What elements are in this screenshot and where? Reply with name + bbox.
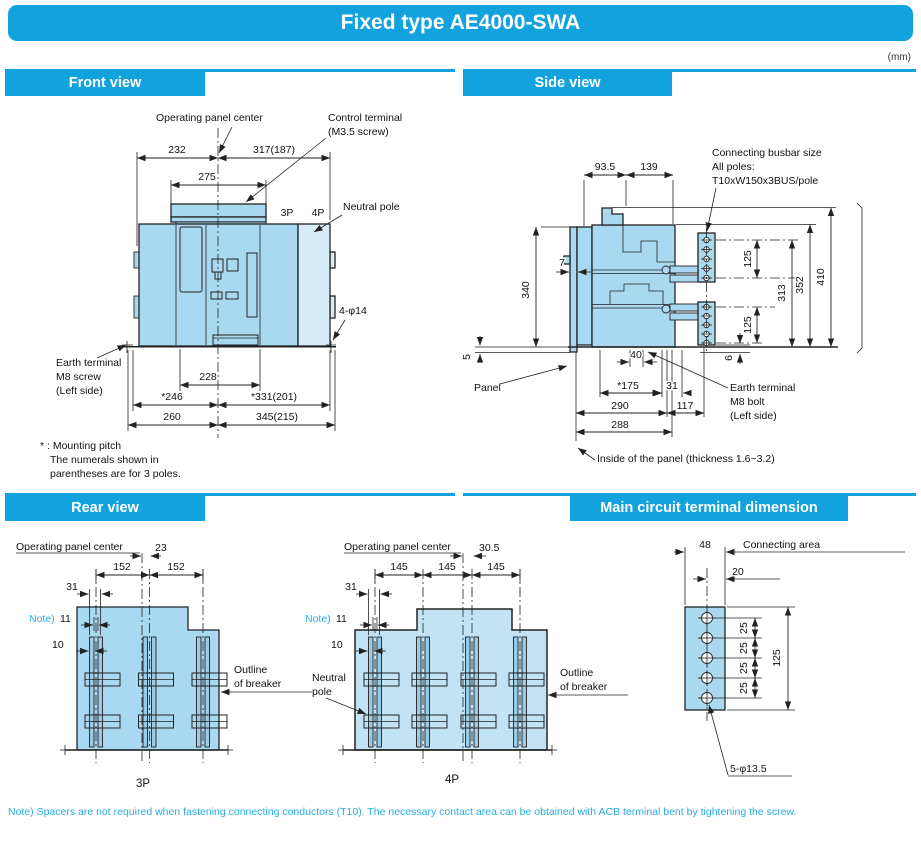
section-header-rear: Rear view (5, 495, 205, 521)
terminal-section-label: Main circuit terminal dimension (600, 500, 818, 516)
rear-4p-outline-label-2: of breaker (560, 681, 608, 693)
rear-4p-dim-10: 10 (331, 639, 343, 651)
unit-note: (mm) (888, 52, 911, 63)
front-dim-345: 345(215) (256, 411, 298, 423)
side-panel-label: Panel (474, 382, 501, 394)
rear-4p-outline-label: Outline (560, 667, 593, 679)
front-breaker-body (122, 204, 336, 353)
rear-3p-dim-152-right: 152 (167, 561, 185, 573)
rear-4p-operating-panel-center: Operating panel center (344, 541, 451, 553)
front-dim-232: 232 (168, 144, 186, 156)
side-busbar-label-1: Connecting busbar size (712, 147, 822, 159)
side-dim-125-bottom: 125 (742, 316, 754, 334)
terminal-holes-label: 5-φ13.5 (730, 763, 767, 775)
terminal-dim-20: 20 (732, 566, 744, 578)
front-section-label: Front view (69, 75, 142, 91)
rear-view-drawing: Operating panel center 23 152 152 31 Not… (0, 525, 640, 803)
front-dim-331: *331(201) (251, 391, 297, 403)
front-dim-275: 275 (198, 171, 216, 183)
front-control-terminal-label: Control terminal (328, 112, 402, 124)
terminal-dim-125: 125 (771, 649, 783, 667)
terminal-dim-25-4: 25 (738, 682, 750, 694)
terminal-connecting-area-label: Connecting area (743, 539, 820, 551)
rear-3p-outline-label-2: of breaker (234, 678, 282, 690)
rear-3p-dim-23: 23 (155, 542, 167, 554)
rear-3p-dim-152-left: 152 (113, 561, 131, 573)
side-inside-panel-label: Inside of the panel (thickness 1.6~3.2) (597, 453, 775, 465)
side-earth-terminal-label-3: (Left side) (730, 410, 777, 422)
side-dim-117: 117 (677, 400, 694, 412)
section-header-terminal: Main circuit terminal dimension (570, 495, 848, 521)
side-earth-terminal-label-2: M8 bolt (730, 396, 765, 408)
rear-4p-dim-145-c: 145 (487, 561, 505, 573)
terminal-dim-25-1: 25 (738, 622, 750, 634)
side-dim-93-5: 93.5 (595, 161, 616, 173)
front-control-terminal-label-2: (M3.5 screw) (328, 126, 389, 138)
rear-4p-neutral-pole-label: Neutral (312, 672, 346, 684)
terminal-dim-25-3: 25 (738, 662, 750, 674)
page-title: Fixed type AE4000-SWA (8, 5, 913, 41)
front-dim-228: 228 (199, 371, 217, 383)
rear-3p-dim-11: 11 (60, 613, 71, 625)
rear-4p-drawing: Operating panel center 30.5 145 145 145 … (305, 541, 628, 786)
front-earth-terminal-label: Earth terminal (56, 357, 121, 369)
rear-3p-dim-10: 10 (52, 639, 64, 651)
front-mount-holes-label: 4-φ14 (339, 305, 367, 317)
front-4p-label: 4P (312, 207, 325, 219)
rear-4p-caption: 4P (445, 774, 459, 786)
side-dim-313: 313 (776, 284, 788, 302)
page-footnote: Note) Spacers are not required when fast… (8, 806, 796, 818)
front-footnote-1: * : Mounting pitch (40, 440, 121, 452)
front-view-drawing: 232 317(187) 275 228 *246 *331(201) 260 … (0, 100, 460, 492)
rear-4p-dim-145-b: 145 (438, 561, 456, 573)
front-neutral-pole-label: Neutral pole (343, 201, 400, 213)
side-dim-139: 139 (640, 161, 658, 173)
side-busbar-label-2: All poles: (712, 161, 755, 173)
front-earth-terminal-label-2: M8 screw (56, 371, 101, 383)
section-header-front: Front view (5, 70, 205, 96)
side-dim-31: 31 (666, 380, 678, 392)
rear-4p-dim-31: 31 (345, 581, 357, 593)
terminal-body (685, 568, 762, 721)
side-dim-340: 340 (520, 281, 532, 299)
side-dim-125-top: 125 (742, 250, 754, 268)
side-dim-352: 352 (794, 276, 806, 294)
front-earth-terminal-label-3: (Left side) (56, 385, 103, 397)
terminal-dim-25-2: 25 (738, 642, 750, 654)
side-dim-7: 7 (559, 257, 565, 269)
rear-3p-outline-label: Outline (234, 664, 267, 676)
side-section-label: Side view (534, 75, 600, 91)
rear-3p-note-label: Note) (29, 613, 55, 625)
side-dim-175: *175 (617, 380, 639, 392)
front-footnote-2: The numerals shown in (50, 454, 159, 466)
front-dim-317: 317(187) (253, 144, 295, 156)
section-header-side: Side view (463, 70, 672, 96)
rear-3p-drawing: Operating panel center 23 152 152 31 Not… (16, 541, 312, 790)
side-earth-terminal-label: Earth terminal (730, 382, 795, 394)
side-dim-288: 288 (611, 419, 629, 431)
rear-4p-note-label: Note) (305, 613, 331, 625)
front-dim-260: 260 (163, 411, 181, 423)
front-3p-label: 3P (281, 207, 294, 219)
side-dim-410: 410 (815, 268, 827, 286)
terminal-dim-48: 48 (699, 539, 711, 551)
front-operating-panel-center-label: Operating panel center (156, 112, 263, 124)
front-footnote-3: parentheses are for 3 poles. (50, 468, 181, 480)
rear-3p-caption: 3P (136, 778, 150, 790)
rear-4p-neutral-pole-label-2: pole (312, 686, 332, 698)
rear-4p-dim-11: 11 (336, 613, 347, 625)
side-dim-290: 290 (611, 400, 629, 412)
rear-section-label: Rear view (71, 500, 139, 516)
side-dim-6: 6 (723, 355, 735, 361)
front-dim-246: *246 (161, 391, 183, 403)
rear-3p-dim-31: 31 (66, 581, 78, 593)
side-dim-40: 40 (630, 349, 642, 361)
side-dim-5: 5 (461, 354, 473, 360)
rear-4p-dim-30-5: 30.5 (479, 542, 500, 554)
side-view-drawing: 93.5 139 340 7 125 125 313 352 410 5 40 … (460, 100, 921, 492)
terminal-drawing: 48 Connecting area 20 25 25 25 25 125 5-… (640, 525, 921, 803)
rear-4p-dim-145-a: 145 (390, 561, 408, 573)
side-busbar-label-3: T10xW150x3BUS/pole (712, 175, 818, 187)
rear-3p-operating-panel-center: Operating panel center (16, 541, 123, 553)
